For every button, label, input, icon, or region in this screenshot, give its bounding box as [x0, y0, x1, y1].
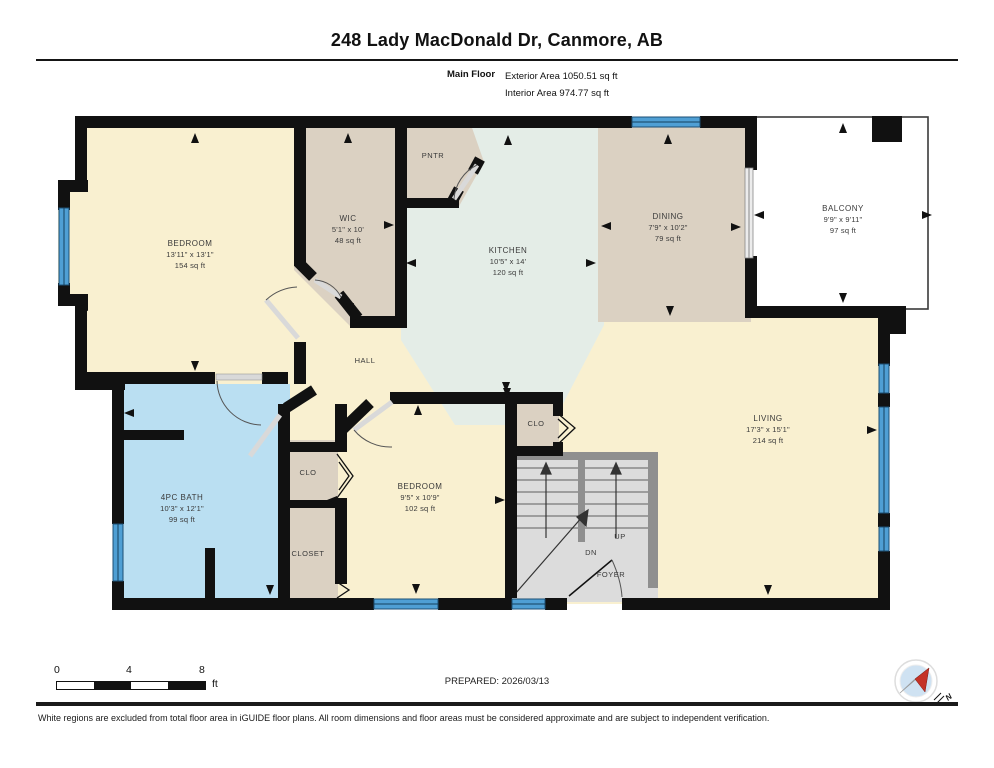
footer-divider: [36, 702, 958, 706]
svg-text:BEDROOM: BEDROOM: [168, 239, 213, 248]
scale-tick-8: 8: [199, 664, 205, 676]
scale-tick-0: 0: [54, 664, 60, 676]
svg-text:13'11" x 13'1": 13'11" x 13'1": [166, 250, 214, 259]
svg-text:7'9" x 10'2": 7'9" x 10'2": [648, 223, 687, 232]
label-clo-stairs: CLO: [528, 419, 545, 428]
label-up: UP: [614, 532, 625, 541]
svg-text:9'9" x 9'11": 9'9" x 9'11": [824, 215, 863, 224]
svg-text:17'3" x 15'1": 17'3" x 15'1": [746, 425, 790, 434]
svg-text:214 sq ft: 214 sq ft: [753, 436, 784, 445]
label-pntr: PNTR: [422, 151, 445, 160]
svg-text:10'5" x 14': 10'5" x 14': [490, 257, 527, 266]
svg-text:79 sq ft: 79 sq ft: [655, 234, 682, 243]
svg-text:LIVING: LIVING: [753, 414, 782, 423]
svg-text:DINING: DINING: [653, 212, 684, 221]
svg-text:9'5" x 10'9": 9'5" x 10'9": [400, 493, 439, 502]
svg-text:4PC BATH: 4PC BATH: [161, 493, 204, 502]
svg-text:BALCONY: BALCONY: [822, 204, 864, 213]
stair-wall-right: [648, 452, 658, 588]
svg-text:48 sq ft: 48 sq ft: [335, 236, 362, 245]
prepared-date: PREPARED: 2026/03/13: [0, 676, 994, 687]
scale-tick-4: 4: [126, 664, 132, 676]
label-closet: CLOSET: [291, 549, 324, 558]
svg-text:WIC: WIC: [339, 214, 356, 223]
bath-floor: [118, 384, 290, 604]
svg-text:10'3" x 12'1": 10'3" x 12'1": [160, 504, 204, 513]
disclaimer-text: White regions are excluded from total fl…: [38, 713, 964, 723]
svg-text:97 sq ft: 97 sq ft: [830, 226, 857, 235]
label-dn: DN: [585, 548, 597, 557]
floor-plan-drawing: BEDROOM 13'11" x 13'1" 154 sq ft WIC 5'1…: [0, 0, 994, 768]
svg-text:154 sq ft: 154 sq ft: [175, 261, 206, 270]
label-foyer: FOYER: [597, 570, 625, 579]
balcony-deck: [751, 117, 928, 309]
svg-text:5'1" x 10': 5'1" x 10': [332, 225, 364, 234]
svg-text:99 sq ft: 99 sq ft: [169, 515, 196, 524]
svg-text:120 sq ft: 120 sq ft: [493, 268, 524, 277]
stair-divider: [578, 456, 585, 542]
svg-text:BEDROOM: BEDROOM: [398, 482, 443, 491]
svg-text:102 sq ft: 102 sq ft: [405, 504, 436, 513]
balcony-structure: [751, 116, 928, 334]
floorplan-page: 248 Lady MacDonald Dr, Canmore, AB Main …: [0, 0, 994, 768]
balcony-post-top: [872, 116, 902, 142]
svg-text:KITCHEN: KITCHEN: [489, 246, 528, 255]
label-hall: HALL: [355, 356, 376, 365]
north-label: N: [944, 692, 954, 703]
dining-floor: [598, 122, 751, 322]
label-kitchen: KITCHEN 10'5" x 14' 120 sq ft: [489, 246, 528, 277]
label-clo-bath: CLO: [300, 468, 317, 477]
bath-door-leaf: [216, 374, 262, 380]
